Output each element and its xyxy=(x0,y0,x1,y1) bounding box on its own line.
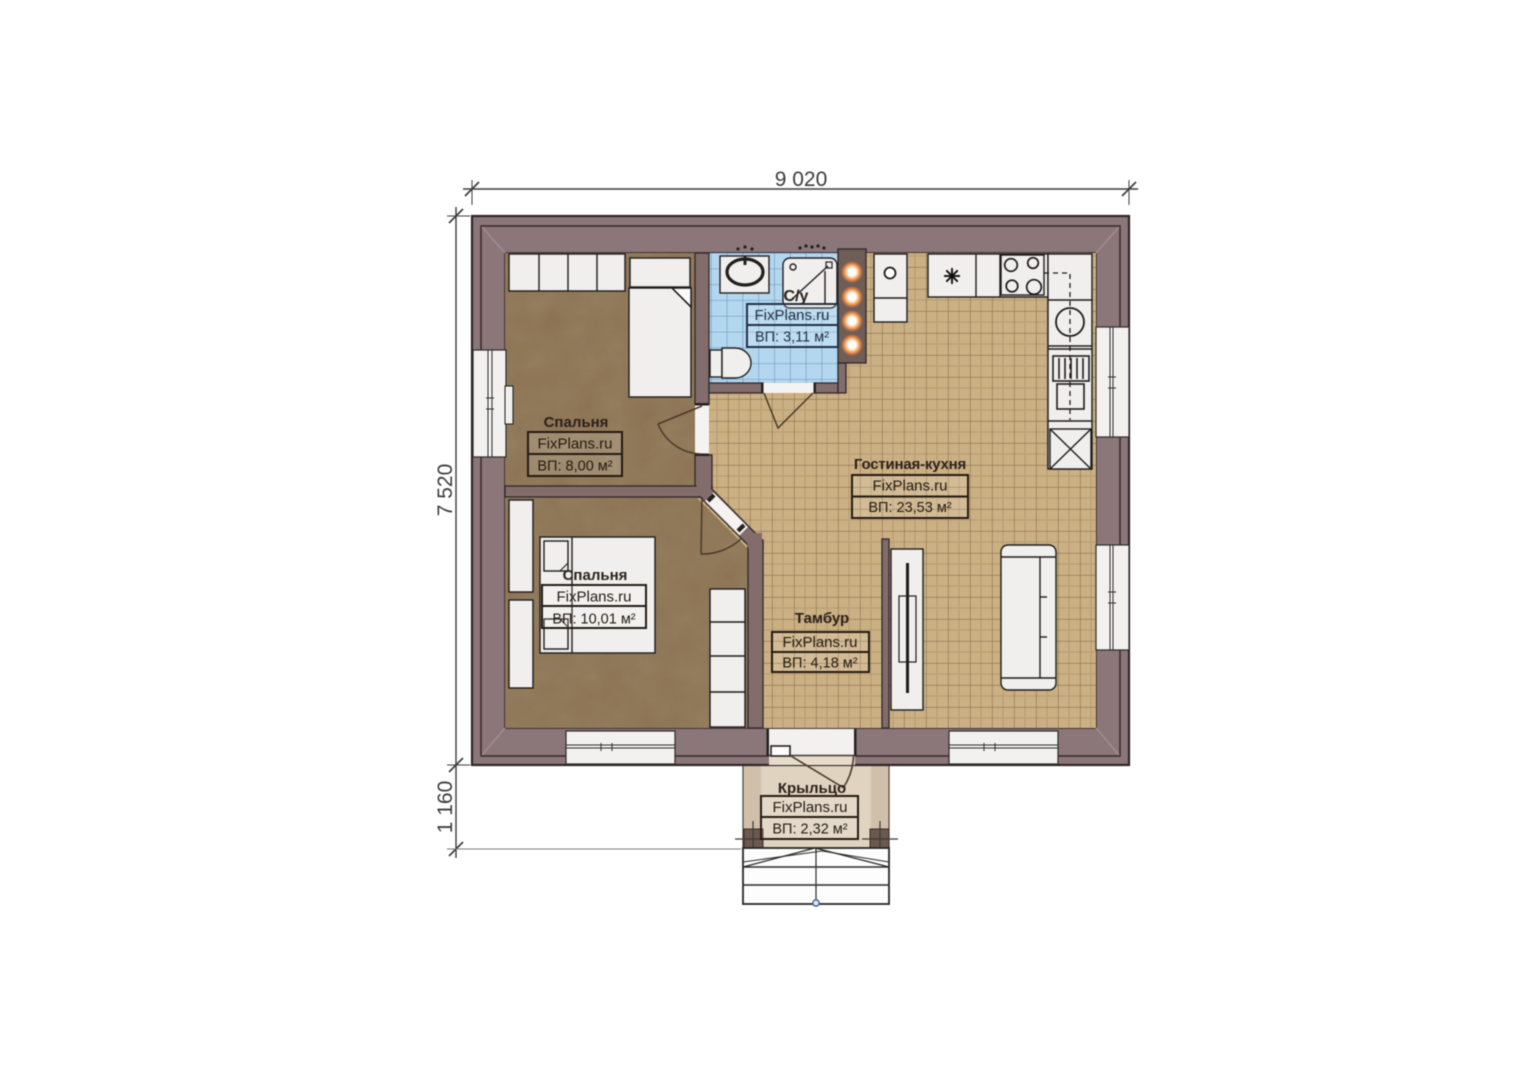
svg-text:ВП: 10,01 м²: ВП: 10,01 м² xyxy=(552,612,635,628)
svg-text:FixPlans.ru: FixPlans.ru xyxy=(782,634,857,651)
svg-text:ВП: 3,11 м²: ВП: 3,11 м² xyxy=(755,329,829,345)
svg-text:Спальня: Спальня xyxy=(544,414,609,431)
svg-text:Спальня: Спальня xyxy=(563,567,628,584)
svg-text:7 520: 7 520 xyxy=(434,464,457,517)
svg-text:1 160: 1 160 xyxy=(434,781,457,834)
svg-text:С/у: С/у xyxy=(784,288,809,305)
svg-text:ВП: 2,32 м²: ВП: 2,32 м² xyxy=(772,821,847,837)
svg-text:ВП: 8,00 м²: ВП: 8,00 м² xyxy=(537,459,612,475)
svg-text:ВП: 4,18 м²: ВП: 4,18 м² xyxy=(782,656,857,672)
svg-text:Тамбур: Тамбур xyxy=(795,610,849,627)
svg-text:Гостиная-кухня: Гостиная-кухня xyxy=(854,456,966,473)
svg-text:9 020: 9 020 xyxy=(775,168,828,191)
svg-text:FixPlans.ru: FixPlans.ru xyxy=(772,799,847,816)
svg-text:FixPlans.ru: FixPlans.ru xyxy=(556,589,631,606)
svg-text:Крыльцо: Крыльцо xyxy=(778,780,846,797)
svg-text:ВП: 23,53 м²: ВП: 23,53 м² xyxy=(868,500,951,516)
svg-text:FixPlans.ru: FixPlans.ru xyxy=(537,436,612,453)
svg-text:FixPlans.ru: FixPlans.ru xyxy=(754,307,829,324)
svg-text:FixPlans.ru: FixPlans.ru xyxy=(872,478,947,495)
